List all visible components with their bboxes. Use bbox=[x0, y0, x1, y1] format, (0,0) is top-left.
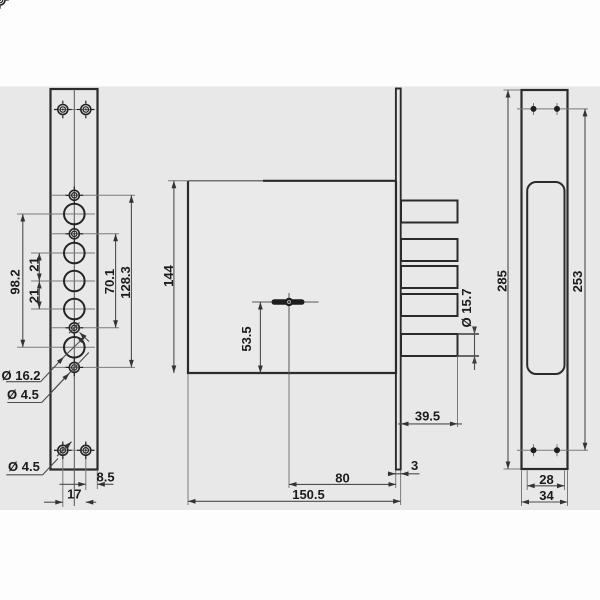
svg-text:8.5: 8.5 bbox=[97, 470, 115, 485]
svg-text:285: 285 bbox=[495, 270, 510, 292]
svg-text:21: 21 bbox=[26, 257, 41, 271]
svg-text:150.5: 150.5 bbox=[292, 487, 325, 502]
svg-text:98.2: 98.2 bbox=[8, 269, 23, 294]
svg-text:39.5: 39.5 bbox=[415, 408, 440, 423]
svg-text:53.5: 53.5 bbox=[239, 326, 254, 351]
svg-text:Ø 4.5: Ø 4.5 bbox=[7, 387, 39, 402]
svg-text:144: 144 bbox=[161, 264, 176, 286]
svg-text:70.1: 70.1 bbox=[102, 269, 117, 294]
svg-text:Ø 4.5: Ø 4.5 bbox=[8, 459, 40, 474]
svg-text:80: 80 bbox=[335, 470, 349, 485]
svg-text:34: 34 bbox=[539, 488, 554, 503]
svg-text:3: 3 bbox=[411, 458, 418, 473]
svg-text:28: 28 bbox=[539, 472, 553, 487]
svg-text:21: 21 bbox=[26, 289, 41, 303]
svg-text:17: 17 bbox=[67, 486, 81, 501]
svg-text:253: 253 bbox=[570, 271, 585, 293]
svg-text:Ø 16.2: Ø 16.2 bbox=[2, 368, 41, 383]
svg-text:128.3: 128.3 bbox=[118, 266, 133, 299]
svg-text:Ø 15.7: Ø 15.7 bbox=[459, 288, 474, 327]
